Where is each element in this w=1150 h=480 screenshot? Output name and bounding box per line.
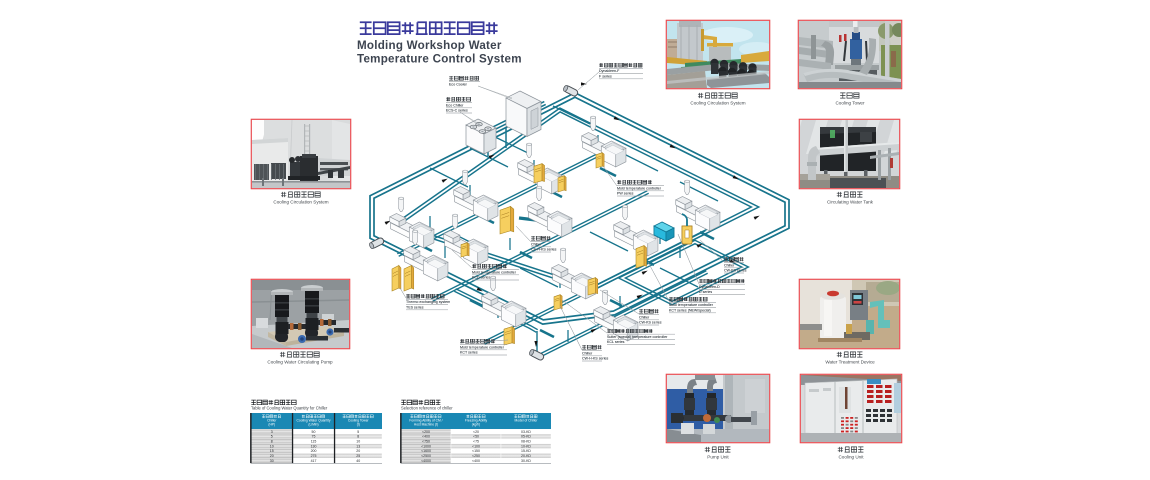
svg-text:Cooling Water Circulating Pum: Cooling Water Circulating Pump [267,360,333,365]
svg-text:(kg/h): (kg/h) [472,423,480,427]
svg-text:D series: D series [699,290,712,294]
svg-text:75: 75 [312,435,316,439]
svg-text:115: 115 [311,440,317,444]
svg-text:<1000: <1000 [421,444,431,448]
svg-text:10: 10 [270,444,274,448]
svg-text:10: 10 [356,440,360,444]
svg-text:30: 30 [270,459,274,463]
svg-text:Dynakleen-F: Dynakleen-F [599,69,620,73]
svg-text:Water Treatment Device: Water Treatment Device [825,360,875,365]
svg-text:KCT series: KCT series [460,351,478,355]
svg-text:Cooling Circulation System: Cooling Circulation System [690,101,745,106]
svg-text:<250: <250 [472,454,480,458]
svg-text:CW-KS series: CW-KS series [639,321,662,325]
svg-text:Pump Unit: Pump Unit [707,455,729,460]
svg-text:Eco Cooler: Eco Cooler [449,82,468,86]
svg-text:TES series: TES series [406,305,424,309]
svg-text:CW-H-KS series: CW-H-KS series [582,357,608,361]
svg-text:8: 8 [357,435,359,439]
svg-text:Mold temperature controller: Mold temperature controller [669,303,714,307]
svg-text:5: 5 [271,435,273,439]
svg-text:CW-KS series: CW-KS series [724,269,747,273]
svg-text:8: 8 [271,440,273,444]
svg-text:<75: <75 [473,440,479,444]
svg-text:F series: F series [599,74,612,78]
svg-text:Chiller: Chiller [531,242,542,246]
svg-text:Cooling Circulation System: Cooling Circulation System [273,200,328,205]
svg-text:<400: <400 [472,459,480,463]
svg-text:20-KD: 20-KD [521,454,531,458]
svg-text:Molding Workshop Water: Molding Workshop Water [357,39,502,52]
svg-text:417: 417 [311,459,317,463]
svg-text:(L/Min): (L/Min) [308,423,318,427]
svg-text:20: 20 [270,454,274,458]
svg-text:KCL series: KCL series [607,340,625,344]
svg-text:5: 5 [357,430,359,434]
svg-text:13: 13 [356,444,360,448]
svg-text:Model of Chiller: Model of Chiller [515,419,539,423]
svg-text:05-KD: 05-KD [521,435,531,439]
svg-text:15: 15 [270,449,274,453]
svg-text:08-KD: 08-KD [521,440,531,444]
svg-text:200: 200 [311,449,317,453]
svg-text:Selection reference of chiller: Selection reference of chiller [401,405,453,410]
svg-text:20: 20 [356,449,360,453]
svg-text:Circulating Water Tank: Circulating Water Tank [827,200,874,205]
svg-text:Thermo exchanging system: Thermo exchanging system [406,300,450,304]
svg-text:<150: <150 [472,449,480,453]
svg-text:03-KD: 03-KD [521,430,531,434]
svg-text:Mold temperature controller: Mold temperature controller [472,270,517,274]
svg-text:Mold temperature controller: Mold temperature controller [460,345,505,349]
svg-text:Chiller: Chiller [724,263,735,267]
svg-text:<4000: <4000 [421,459,431,463]
svg-text:Mold temperature controller: Mold temperature controller [617,186,662,190]
svg-text:Temperature Control System: Temperature Control System [357,53,522,66]
svg-text:<20: <20 [473,430,479,434]
svg-text:<400: <400 [422,435,430,439]
svg-text:(HP): (HP) [268,423,275,427]
svg-text:130: 130 [311,444,317,448]
svg-text:Cooling Tower: Cooling Tower [835,101,864,106]
svg-text:Host Machine (t): Host Machine (t) [414,423,438,427]
svg-text:<100: <100 [472,444,480,448]
svg-text:Table of Cooling Water Quantit: Table of Cooling Water Quantity for Chil… [251,405,328,410]
svg-text:50: 50 [312,430,316,434]
svg-text:Chiller: Chiller [582,351,593,355]
svg-text:10-KD: 10-KD [521,444,531,448]
svg-text:Cooling Unit: Cooling Unit [838,455,864,460]
svg-text:Chiller: Chiller [639,315,650,319]
svg-text:<750: <750 [422,440,430,444]
svg-text:KCD series: KCD series [472,276,490,280]
svg-text:<50: <50 [473,435,479,439]
svg-text:275: 275 [311,454,317,458]
svg-text:ECS-C series: ECS-C series [446,109,468,113]
svg-text:3: 3 [271,430,273,434]
svg-text:Sutter (special) temperature c: Sutter (special) temperature controller [607,335,668,339]
svg-text:25: 25 [356,454,360,458]
svg-text:Eco Chiller: Eco Chiller [446,103,464,107]
svg-text:<1600: <1600 [421,449,431,453]
svg-text:CA-H-KS series: CA-H-KS series [531,248,557,252]
svg-text:40: 40 [356,459,360,463]
svg-text:(t): (t) [357,423,360,427]
svg-text:<2500: <2500 [421,454,431,458]
svg-text:<200: <200 [422,430,430,434]
svg-text:Dynakleen-D: Dynakleen-D [699,285,720,289]
svg-text:KCT series (NEW/special): KCT series (NEW/special) [669,308,711,312]
svg-text:PW series: PW series [617,192,634,196]
svg-text:30-KD: 30-KD [521,459,531,463]
svg-text:15-KD: 15-KD [521,449,531,453]
